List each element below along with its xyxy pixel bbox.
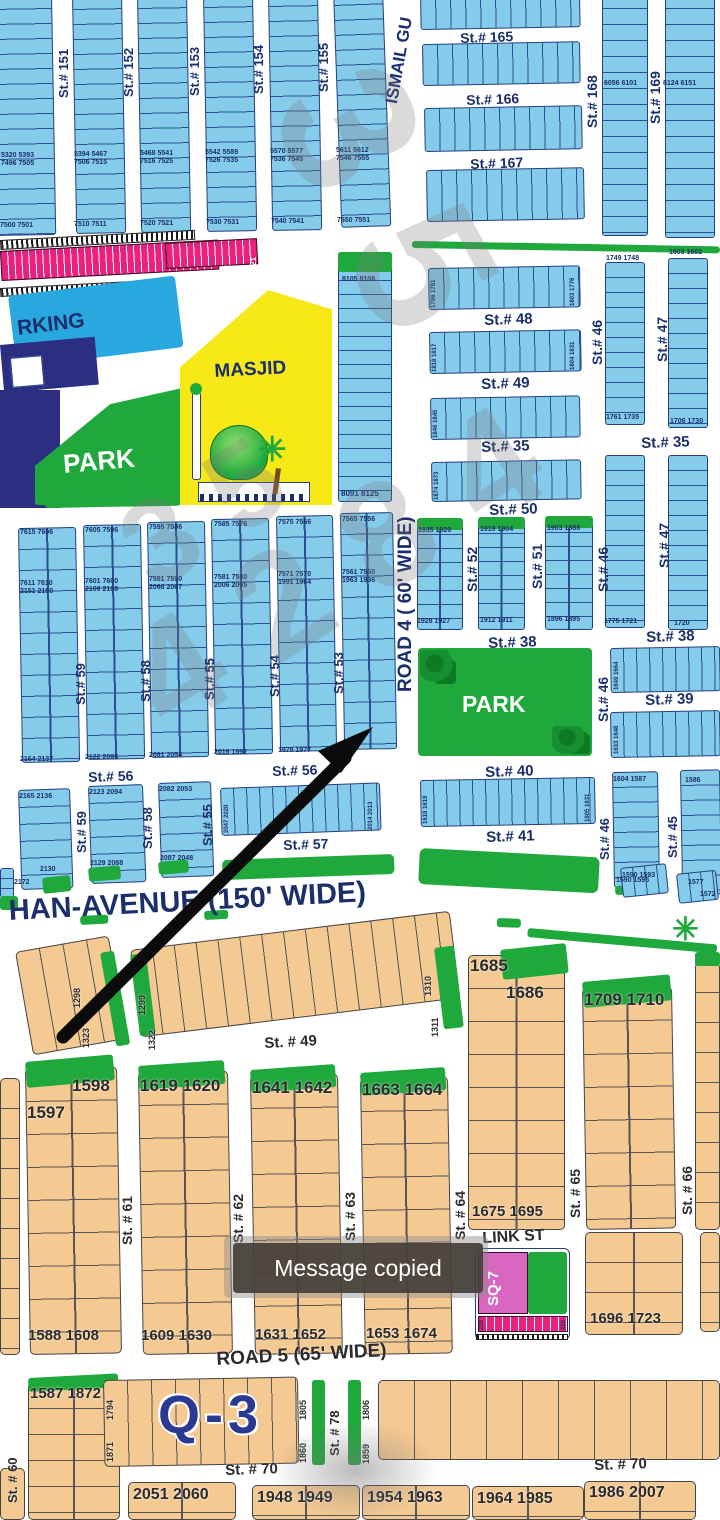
plots-154b: 7530 7531 <box>206 219 239 227</box>
orange-col-67-cap <box>695 952 720 966</box>
plot-1964-1985: 1964 1985 <box>477 1490 553 1507</box>
plots-7615: 7615 7606 <box>20 529 53 537</box>
label-q3: Q-3 <box>158 1386 263 1444</box>
edge-1794: 1794 <box>106 1400 116 1420</box>
plots-1978: 1978 1977 <box>278 747 311 755</box>
plots-6124: 6124 6151 <box>663 80 696 88</box>
col-short-58-cap <box>88 865 121 882</box>
plot-col-155 <box>268 0 322 231</box>
plots-151: 5320 5393 7496 7505 <box>1 152 34 167</box>
plot-col-152 <box>72 0 126 234</box>
street-152: St.# 152 <box>122 48 136 97</box>
masjid-minaret <box>192 392 201 480</box>
plots-1903: 1903 1888 <box>547 525 580 533</box>
edge-2014: 2014 2013 <box>368 802 374 830</box>
street-166: St.# 166 <box>466 91 519 108</box>
palm-icon: ✳ <box>672 912 699 947</box>
plots-7581: 7581 7580 2006 2005 <box>214 574 247 589</box>
edge-1649: 1649 1664 <box>614 662 620 690</box>
street-53: St.# 53 <box>332 652 346 694</box>
plots-7601: 7601 7600 2109 2108 <box>85 578 118 593</box>
watermark-blob <box>270 1420 440 1520</box>
plots-1604: 1604 1587 <box>613 776 646 784</box>
col-upper-54 <box>211 518 273 755</box>
edge-1618: 1618 1619 <box>423 796 429 824</box>
plot-1986-2007: 1986 2007 <box>589 1484 665 1501</box>
plots-2164: 2164 2137 <box>20 756 53 764</box>
row-st39-right <box>610 710 720 758</box>
park-tree-1 <box>420 650 456 684</box>
plot-1686: 1686 <box>506 984 544 1002</box>
edge-1804: 1804 1831 <box>570 342 576 370</box>
blue-blk-1577 <box>676 870 719 904</box>
green-strip-41 <box>418 848 600 893</box>
plot-1641-1642: 1641 1642 <box>252 1079 332 1097</box>
toast-text: Message copied <box>274 1255 442 1282</box>
row-st35 <box>430 395 581 440</box>
street-57: St.# 57 <box>283 836 329 853</box>
label-21: 21 <box>250 257 259 266</box>
col-upper-59 <box>18 527 80 763</box>
plots-7561: 7561 7560 1963 1936 <box>342 569 375 584</box>
masjid-wall-arches <box>200 494 308 501</box>
street-61: St. # 61 <box>120 1196 135 1245</box>
street-45: St.# 45 <box>666 816 680 858</box>
edge-1311: 1311 <box>431 1017 441 1037</box>
street-46d: St.# 46 <box>598 818 612 860</box>
row-st40 <box>420 777 596 827</box>
orange-blk-right-sliver <box>700 1232 720 1332</box>
street-52: St.# 52 <box>465 547 480 592</box>
masjid-minaret-top <box>190 383 202 395</box>
plot-col-8091 <box>338 252 392 502</box>
plots-156b: 7550 7551 <box>337 217 370 225</box>
plots-1761: 1761 1735 <box>606 414 639 422</box>
street-38r: St.# 38 <box>646 628 695 646</box>
col-46a-upper <box>605 262 645 425</box>
plots-153: 5468 5541 7516 7525 <box>140 150 173 165</box>
row-st165 <box>420 0 581 30</box>
plot-1587-1872: 1587 1872 <box>30 1386 101 1402</box>
street-35r: St.# 35 <box>641 434 690 452</box>
street-56l: St.# 56 <box>88 768 134 785</box>
label-22: 22 <box>224 265 233 274</box>
plots-1928: 1928 1927 <box>417 618 450 626</box>
plot-col-8091-cap <box>338 252 392 272</box>
plots-156: 5611 5612 7546 7555 <box>336 147 369 162</box>
street-60: St. # 60 <box>6 1457 20 1503</box>
street-link: LINK ST <box>482 1227 545 1247</box>
street-47b: St.# 47 <box>657 523 672 568</box>
sq7-220a: 220 <box>479 1320 485 1330</box>
row-st166 <box>422 41 581 86</box>
street-169: St.# 169 <box>648 71 663 124</box>
col-upper-55 <box>147 521 209 758</box>
edge-1633: 1633 1648 <box>614 726 620 754</box>
mini-col-51 <box>478 519 525 630</box>
edge-1871: 1871 <box>106 1442 116 1462</box>
street-55a: St.# 55 <box>203 658 217 700</box>
row-st167 <box>424 105 583 152</box>
plots-1706: 1706 1730 <box>670 418 703 426</box>
street-153: St.# 153 <box>188 47 202 96</box>
road-4: ROAD 4 ( 60' WIDE) <box>396 516 417 692</box>
edge-1803: 1803 1776 <box>570 278 576 306</box>
edge-1322: 1322 <box>148 1030 158 1050</box>
edge-1299: 1299 <box>138 995 148 1015</box>
street-39: St.# 39 <box>645 691 694 709</box>
row-st167b <box>426 167 585 222</box>
street-59b: St.# 59 <box>75 811 89 853</box>
street-46b: St.# 46 <box>596 547 611 592</box>
plot-1709-1710: 1709 1710 <box>584 991 664 1009</box>
plots-7595: 7595 7586 <box>149 524 182 532</box>
plot-col-151 <box>0 0 56 236</box>
street-54: St.# 54 <box>268 655 282 697</box>
plots-1749: 1749 1748 <box>606 255 639 263</box>
street-65: St. # 65 <box>568 1169 583 1218</box>
street-167: St.# 167 <box>470 155 523 172</box>
edge-1846: 1846 1845 <box>433 410 439 438</box>
plots-7611: 7611 7610 2151 2150 <box>20 580 53 595</box>
plots-7585: 7585 7576 <box>214 521 247 529</box>
street-46c: St.# 46 <box>596 677 611 722</box>
label-park-west: PARK <box>62 444 136 478</box>
plots-1775: 1775 1721 <box>604 618 637 626</box>
label-sq7: SQ-7 <box>486 1271 502 1306</box>
street-63: St. # 63 <box>343 1192 358 1241</box>
edge-1323: 1323 <box>82 1028 92 1048</box>
green-median-3 <box>497 918 521 928</box>
plots-7575: 7575 7566 <box>278 519 311 527</box>
street-70r: St. # 70 <box>594 1456 647 1474</box>
plots-2081: 2081 2054 <box>149 752 182 760</box>
street-155: St.# 155 <box>317 43 331 92</box>
plots-7591: 7591 7590 2068 2067 <box>149 576 182 591</box>
road-ismail: ISMAIL GU <box>383 16 416 105</box>
col-upper-58 <box>83 524 145 760</box>
street-40: St.# 40 <box>485 763 534 781</box>
plots-1572: 1572 <box>700 891 716 899</box>
street-58b: St.# 58 <box>141 807 155 849</box>
plots-155: 5570 5577 7536 7545 <box>270 148 303 163</box>
orange-col-66 <box>582 986 676 1230</box>
plots-2087: 2087 2048 <box>160 855 193 863</box>
plot-1696-1723: 1696 1723 <box>590 1311 661 1327</box>
plots-1586: 1586 <box>685 777 701 785</box>
plot-1609-1630: 1609 1630 <box>141 1328 212 1344</box>
map-canvas[interactable]: Message copied St.# 151St.# 152St.# 153S… <box>0 0 720 1520</box>
col-upper-53 <box>276 515 337 752</box>
col-47a-lower <box>668 455 708 630</box>
street-168: St.# 168 <box>585 75 600 128</box>
plots-1896: 1896 1895 <box>547 616 580 624</box>
edge-1874: 1874 1873 <box>434 472 440 500</box>
green-strip-57 <box>222 854 395 880</box>
plots-6056: 6056 6101 <box>604 80 637 88</box>
col-47a-upper <box>668 258 708 428</box>
col-st168 <box>602 0 648 236</box>
plots-1590a: 1590 1593 <box>622 872 655 880</box>
col-46a-lower <box>605 455 645 628</box>
sq7-220b: 220 <box>561 1320 567 1330</box>
plot-col-153 <box>137 0 191 233</box>
toast: Message copied <box>233 1243 483 1293</box>
plots-2019: 2019 1992 <box>214 749 247 757</box>
plots-1577: 1577 <box>688 879 704 887</box>
strip-st57 <box>220 782 382 836</box>
plot-1588-1608: 1588 1608 <box>28 1328 99 1344</box>
plots-152b: 7510 7511 <box>74 221 107 229</box>
row-st50 <box>431 459 582 502</box>
edge-1310: 1310 <box>424 976 434 996</box>
street-64: St. # 64 <box>453 1191 468 1240</box>
mini-col-46 <box>545 518 593 630</box>
plot-1598: 1598 <box>72 1077 110 1095</box>
plots-154: 5542 5589 7526 7535 <box>205 149 238 164</box>
edge-1818: 1818 1817 <box>432 344 438 372</box>
plot-2051-2060: 2051 2060 <box>133 1486 209 1503</box>
plots-7605: 7605 7596 <box>85 527 118 535</box>
row-st48 <box>428 265 581 310</box>
plot-col-156 <box>333 0 391 228</box>
plot-1631-1652: 1631 1652 <box>255 1327 326 1343</box>
edge-1796: 1796 1781 <box>431 280 437 308</box>
edge-1806: 1806 <box>362 1400 372 1420</box>
street-49o: St. # 49 <box>264 1033 317 1052</box>
street-58a: St.# 58 <box>139 660 153 702</box>
sq7-hatch <box>476 1334 568 1340</box>
label-masjid: MASJID <box>214 358 287 382</box>
plots-151b: 7500 7501 <box>0 222 33 230</box>
plots-153b: 7520 7521 <box>140 220 173 228</box>
street-46a: St.# 46 <box>590 320 605 365</box>
row-st49 <box>429 329 582 374</box>
orange-col-62 <box>138 1070 233 1355</box>
street-165: St.# 165 <box>460 29 513 46</box>
edge-2047: 2047 2020 <box>224 805 230 833</box>
orange-col-63 <box>250 1073 343 1354</box>
street-48: St.# 48 <box>484 311 533 329</box>
plots-1919: 1919 1904 <box>480 526 513 534</box>
plots-8105: 8105 8108 <box>342 276 375 284</box>
plot-1675-1695: 1675 1695 <box>472 1204 543 1220</box>
col-upper-road4 <box>340 512 397 750</box>
plot-1619-1620: 1619 1620 <box>140 1077 220 1095</box>
plots-2123: 2123 2094 <box>89 789 122 797</box>
green-sliver-park <box>45 496 180 508</box>
street-66: St. # 66 <box>680 1166 695 1215</box>
plots-2082: 2082 2053 <box>159 786 192 794</box>
street-49r: St.# 49 <box>481 375 530 393</box>
plot-1685: 1685 <box>470 957 508 975</box>
street-47a: St.# 47 <box>655 317 670 362</box>
edge-1805: 1805 <box>299 1400 309 1420</box>
street-151: St.# 151 <box>57 49 71 98</box>
sq7-ministrip <box>478 1316 568 1332</box>
plots-155b: 7540 7541 <box>271 218 304 226</box>
plots-1603: 1603 1602 <box>669 249 702 257</box>
plots-1935: 1935 1920 <box>418 527 451 535</box>
park-tree-2 <box>552 726 590 754</box>
plot-col-154 <box>203 0 257 232</box>
plots-1912: 1912 1911 <box>480 617 513 625</box>
plots-7571: 7571 7570 1991 1964 <box>278 571 311 586</box>
plots-152: 5394 5467 7506 7515 <box>74 151 107 166</box>
plot-1663-1664: 1663 1664 <box>362 1081 442 1099</box>
orange-col-64 <box>360 1076 453 1354</box>
edge-1298: 1298 <box>73 988 83 1008</box>
street-55b: St.# 55 <box>201 804 215 846</box>
street-38l: St.# 38 <box>488 634 537 652</box>
plots-2122: 2122 2095 <box>85 754 118 762</box>
row-st38-right <box>610 646 720 693</box>
plot-1597: 1597 <box>27 1104 65 1122</box>
mini-col-52 <box>417 520 463 630</box>
plots-8091: 8091 8125 <box>341 490 379 499</box>
street-154: St.# 154 <box>252 45 266 94</box>
masjid-palm: ✳ <box>258 432 287 469</box>
orange-row-top <box>130 911 460 1038</box>
plots-2165: 2165 2136 <box>19 793 52 801</box>
street-59a: St.# 59 <box>74 663 88 705</box>
street-50: St.# 50 <box>489 501 538 519</box>
plots-1720: 1720 <box>674 620 690 628</box>
sq7-green <box>528 1252 567 1314</box>
navy-block-white <box>10 355 44 388</box>
col-st169 <box>665 0 715 238</box>
plots-2130: 2130 <box>40 866 56 874</box>
orange-col-67 <box>695 962 720 1230</box>
plots-2129: 2129 2088 <box>90 860 123 868</box>
street-35l: St.# 35 <box>481 438 530 456</box>
road-5: ROAD 5 (65' WIDE) <box>216 1341 387 1370</box>
edge-1605: 1605 1631 <box>585 794 591 822</box>
orange-edge-left <box>0 1078 20 1355</box>
street-56r: St.# 56 <box>272 762 318 779</box>
edge-blue-left <box>0 868 14 898</box>
label-park-main: PARK <box>462 692 525 717</box>
plots-7565: 7565 7556 <box>342 516 375 524</box>
street-41: St.# 41 <box>486 828 535 846</box>
street-51: St.# 51 <box>530 544 545 589</box>
plots-2172: 2172 <box>14 879 30 887</box>
pink-strip-step <box>165 238 258 269</box>
